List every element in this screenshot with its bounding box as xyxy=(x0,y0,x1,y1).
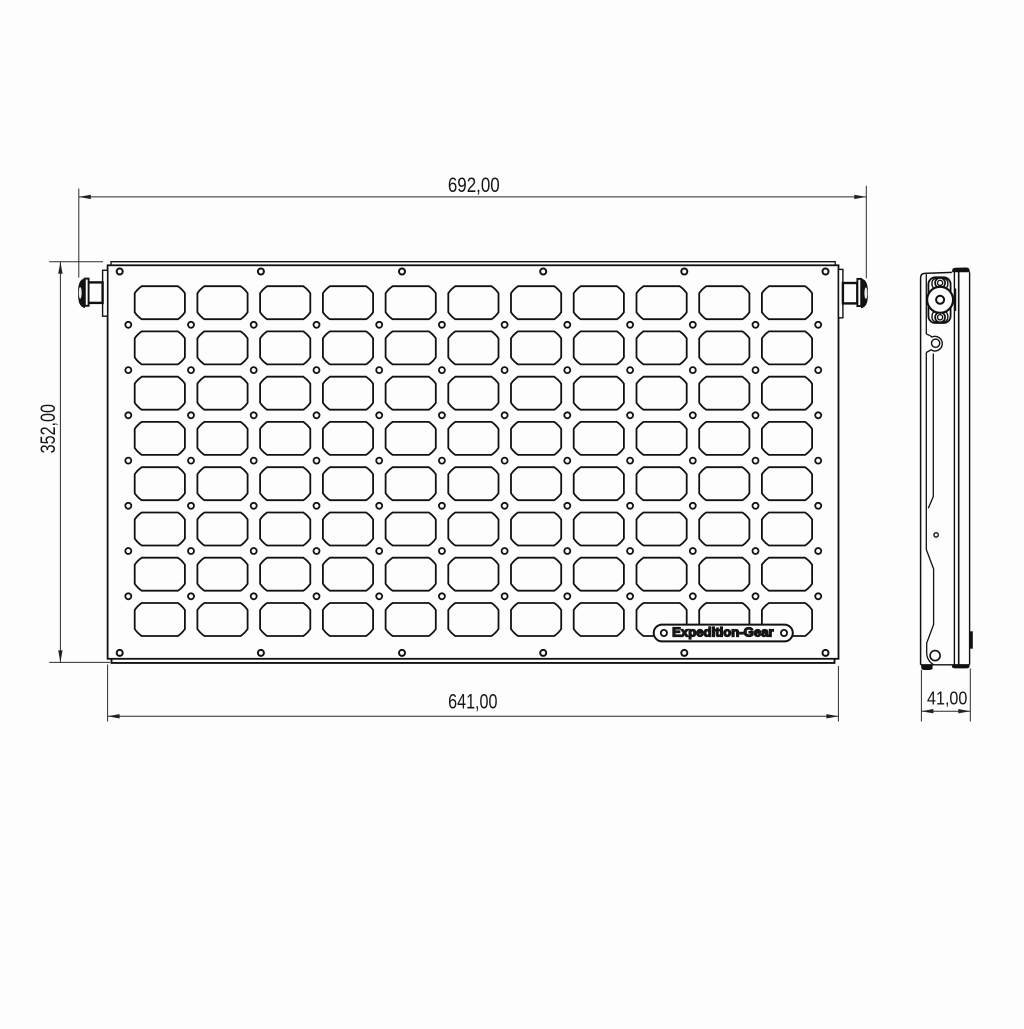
svg-text:Expedition-Gear: Expedition-Gear xyxy=(672,625,774,640)
svg-text:641,00: 641,00 xyxy=(448,690,497,714)
svg-text:692,00: 692,00 xyxy=(448,173,500,197)
svg-text:41,00: 41,00 xyxy=(927,687,967,708)
svg-text:352,00: 352,00 xyxy=(36,404,60,453)
